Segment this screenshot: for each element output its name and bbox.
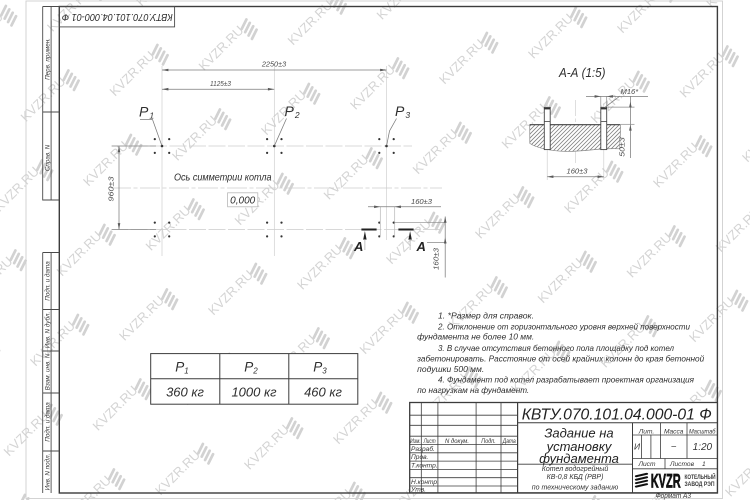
svg-text:KVZR.RU: KVZR.RU xyxy=(624,230,675,281)
svg-text:KVZR.RU: KVZR.RU xyxy=(374,0,425,23)
svg-text:KVZR.RU: KVZR.RU xyxy=(54,228,105,279)
svg-text:KVZR.RU: KVZR.RU xyxy=(588,75,639,126)
svg-text:Изм.: Изм. xyxy=(410,438,421,445)
svg-text:KVZR.RU: KVZR.RU xyxy=(107,48,158,99)
svg-text:Формат А3: Формат А3 xyxy=(656,493,692,500)
svg-text:1: 1 xyxy=(702,461,706,468)
svg-text:КВТУ.070.101.04.000-01 Ф: КВТУ.070.101.04.000-01 Ф xyxy=(62,11,173,23)
svg-text:фундамента не более 10 мм.: фундамента не более 10 мм. xyxy=(417,333,534,342)
svg-text:KVZR.RU: KVZR.RU xyxy=(677,50,728,101)
svg-text:460 кг: 460 кг xyxy=(304,385,342,400)
svg-text:фундамента: фундамента xyxy=(539,451,619,466)
svg-text:KVZR.RU: KVZR.RU xyxy=(614,0,665,36)
svg-text:KVZR.RU: KVZR.RU xyxy=(383,216,434,267)
svg-text:KVZR.RU: KVZR.RU xyxy=(472,191,523,242)
svg-text:2. Отклонение от горизонтально: 2. Отклонение от горизонтального уровня … xyxy=(437,322,690,331)
svg-text:KVZR.RU: KVZR.RU xyxy=(169,113,220,164)
svg-text:P3: P3 xyxy=(395,103,410,120)
svg-text:Перв. примен.: Перв. примен. xyxy=(45,38,52,80)
svg-text:KVZR.RU: KVZR.RU xyxy=(285,0,336,48)
svg-text:Пров.: Пров. xyxy=(411,454,429,461)
svg-text:1. *Размер для справок.: 1. *Размер для справок. xyxy=(438,312,534,321)
svg-text:KVZR.RU: KVZR.RU xyxy=(739,114,750,165)
svg-text:160±3: 160±3 xyxy=(566,167,588,176)
svg-text:КВ-0,8 КБД (РВР): КВ-0,8 КБД (РВР) xyxy=(547,474,604,481)
svg-text:Справ. N: Справ. N xyxy=(45,144,52,171)
svg-text:KVZR.RU: KVZR.RU xyxy=(525,11,576,62)
svg-text:4. Фундамент под котел разраба: 4. Фундамент под котел разрабатывает про… xyxy=(438,376,695,385)
svg-text:Котел водогрейный: Котел водогрейный xyxy=(542,465,609,473)
svg-text:Дата: Дата xyxy=(502,438,516,445)
svg-text:KVZR.RU: KVZR.RU xyxy=(143,203,194,254)
svg-text:KVZR.RU: KVZR.RU xyxy=(205,267,256,318)
svg-text:M16*: M16* xyxy=(621,87,640,96)
svg-text:Лист: Лист xyxy=(638,461,656,468)
svg-text:KVZR.RU: KVZR.RU xyxy=(0,254,16,305)
svg-text:1000 кг: 1000 кг xyxy=(231,385,277,400)
svg-text:Листов: Листов xyxy=(669,461,695,468)
svg-text:Масса: Масса xyxy=(664,429,684,436)
svg-text:И: И xyxy=(634,441,641,451)
svg-text:KVZR.RU: KVZR.RU xyxy=(347,62,398,113)
svg-text:КВТУ.070.101.04.000-01 Ф: КВТУ.070.101.04.000-01 Ф xyxy=(522,407,712,424)
svg-text:KVZR.RU: KVZR.RU xyxy=(152,447,203,498)
svg-text:Подп.: Подп. xyxy=(481,437,496,445)
svg-text:Разраб.: Разраб. xyxy=(411,445,435,453)
svg-text:50±3: 50±3 xyxy=(618,136,627,156)
svg-text:1125±3: 1125±3 xyxy=(210,79,232,88)
svg-text:KVZR.RU: KVZR.RU xyxy=(410,126,461,177)
svg-text:Н.контр.: Н.контр. xyxy=(411,479,439,486)
svg-text:2250±3: 2250±3 xyxy=(261,60,287,69)
svg-text:KVZR: KVZR xyxy=(651,472,681,493)
svg-text:KVZR.RU: KVZR.RU xyxy=(713,204,750,255)
svg-text:KVZR.RU: KVZR.RU xyxy=(703,0,750,11)
svg-text:960±3: 960±3 xyxy=(107,176,116,202)
svg-text:KVZR.RU: KVZR.RU xyxy=(722,449,750,500)
svg-text:Т.контр.: Т.контр. xyxy=(411,463,438,470)
svg-text:Подп. и дата: Подп. и дата xyxy=(44,402,52,442)
svg-text:N докум.: N докум. xyxy=(445,437,469,445)
svg-text:KVZR.RU: KVZR.RU xyxy=(196,23,247,74)
svg-text:KVZR.RU: KVZR.RU xyxy=(90,383,141,434)
svg-text:KVZR.RU: KVZR.RU xyxy=(686,294,737,345)
svg-text:KVZR.RU: KVZR.RU xyxy=(321,152,372,203)
svg-text:KVZR.RU: KVZR.RU xyxy=(294,242,345,293)
svg-text:KVZR.RU: KVZR.RU xyxy=(535,255,586,306)
svg-text:KVZR.RU: KVZR.RU xyxy=(650,140,701,191)
svg-text:–: – xyxy=(670,441,676,451)
svg-text:подушки 500 мм.: подушки 500 мм. xyxy=(417,365,484,374)
svg-text:360 кг: 360 кг xyxy=(166,385,204,400)
svg-text:Подп. и дата: Подп. и дата xyxy=(44,261,52,301)
svg-text:А: А xyxy=(353,239,363,254)
svg-text:KVZR.RU: KVZR.RU xyxy=(63,473,114,500)
svg-text:Утв.: Утв. xyxy=(410,486,426,493)
svg-text:А: А xyxy=(416,239,426,254)
svg-text:KVZR.RU: KVZR.RU xyxy=(0,164,42,215)
svg-text:160±3: 160±3 xyxy=(432,247,441,270)
svg-text:KVZR.RU: KVZR.RU xyxy=(27,318,78,369)
svg-text:0,000: 0,000 xyxy=(230,196,255,207)
svg-text:Инв. N дубл.: Инв. N дубл. xyxy=(44,312,52,348)
svg-text:по техническому заданию: по техническому заданию xyxy=(532,484,619,492)
svg-text:P1: P1 xyxy=(139,104,154,121)
svg-text:А-А (1:5): А-А (1:5) xyxy=(558,66,605,80)
svg-text:забетонировать. Расстояние от: забетонировать. Расстояние от осей крайн… xyxy=(416,355,704,364)
svg-text:KVZR.RU: KVZR.RU xyxy=(241,422,292,473)
svg-text:Лист: Лист xyxy=(423,438,436,445)
svg-text:Масштаб: Масштаб xyxy=(689,428,716,436)
svg-text:KVZR.RU: KVZR.RU xyxy=(116,293,167,344)
svg-text:Лит.: Лит. xyxy=(638,429,655,436)
svg-text:по нагрузкам на фундамент.: по нагрузкам на фундамент. xyxy=(417,386,529,395)
svg-text:Ось симметрии котла: Ось симметрии котла xyxy=(174,172,272,183)
svg-text:160±3: 160±3 xyxy=(411,197,433,206)
svg-text:KVZR.RU: KVZR.RU xyxy=(357,306,408,357)
svg-text:3. В случае отсутствия бетонно: 3. В случае отсутствия бетонного пола пл… xyxy=(438,344,674,353)
svg-text:1:20: 1:20 xyxy=(693,442,713,453)
svg-text:КОТЕЛЬНЫЙ: КОТЕЛЬНЫЙ xyxy=(685,473,716,481)
svg-text:KVZR.RU: KVZR.RU xyxy=(436,36,487,87)
svg-text:ЗАВОД РЭП: ЗАВОД РЭП xyxy=(685,481,715,488)
svg-text:Взам. инв. N: Взам. инв. N xyxy=(45,353,52,390)
svg-text:Инв. N подл.: Инв. N подл. xyxy=(44,454,52,491)
